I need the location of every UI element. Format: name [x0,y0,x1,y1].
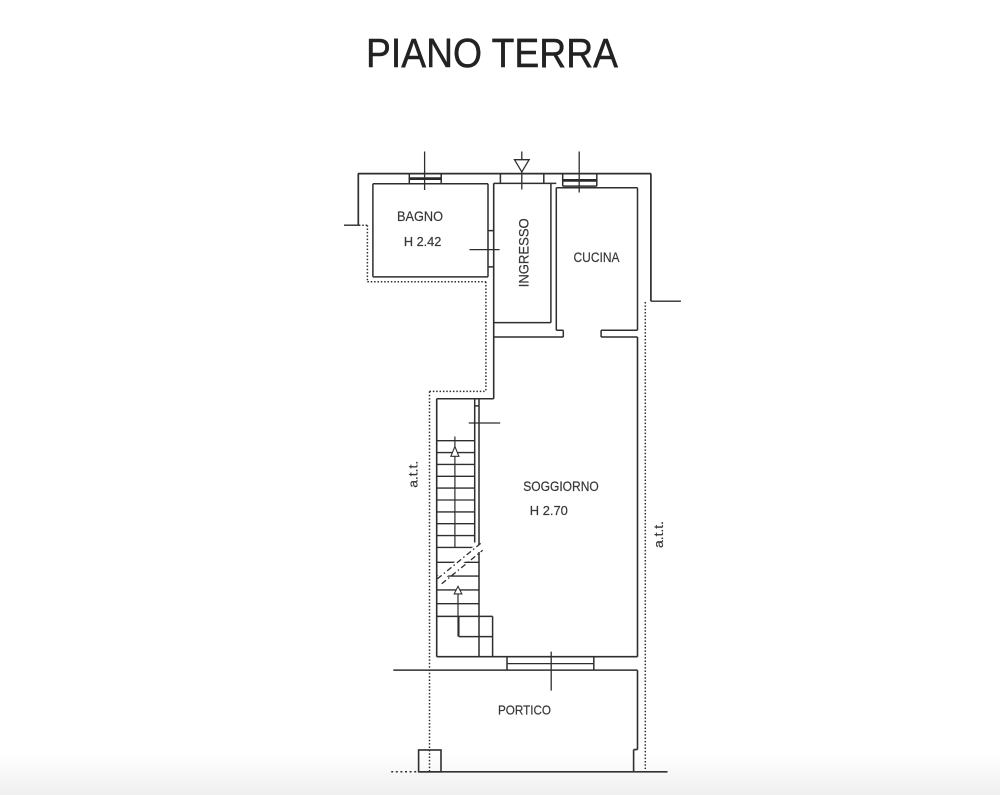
svg-text:PORTICO: PORTICO [498,703,551,718]
svg-text:BAGNO: BAGNO [397,208,443,224]
svg-text:INGRESSO: INGRESSO [516,218,532,287]
svg-text:H 2.70: H 2.70 [530,503,568,518]
svg-text:a.t.t.: a.t.t. [651,521,666,548]
svg-text:a.t.t.: a.t.t. [406,461,421,488]
svg-text:H 2.42: H 2.42 [404,234,442,249]
svg-text:CUCINA: CUCINA [574,249,621,265]
svg-text:SOGGIORNO: SOGGIORNO [523,478,599,494]
svg-text:PIANO TERRA: PIANO TERRA [366,30,619,76]
